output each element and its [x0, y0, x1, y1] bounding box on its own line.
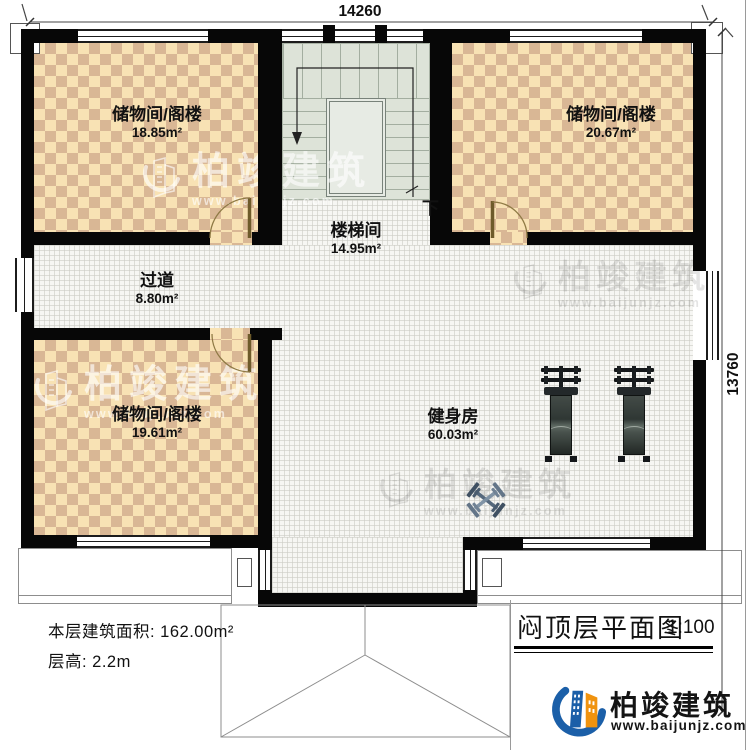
leader-tick	[702, 5, 708, 20]
dimension-right: 13760	[725, 343, 741, 405]
window	[335, 29, 375, 43]
bench-pad	[550, 395, 572, 455]
wall	[693, 360, 706, 550]
stair-treads-left	[283, 98, 326, 199]
staircase	[282, 43, 430, 200]
stair-down-label: 下	[422, 194, 439, 219]
room-area: 8.80m²	[136, 291, 179, 307]
wall	[34, 232, 210, 245]
room-area: 18.85m²	[112, 125, 202, 141]
stair-treads-right	[386, 98, 429, 199]
wall-interior	[258, 43, 282, 245]
title-block-separator	[510, 600, 511, 750]
wall	[210, 535, 258, 548]
dumbbell-icon	[464, 480, 508, 520]
door-threshold-2	[490, 232, 527, 245]
page-frame-line	[745, 0, 746, 750]
window	[387, 29, 423, 43]
wall	[21, 312, 34, 548]
title-underline-thick	[514, 646, 713, 649]
room-name: 储物间/阁楼	[112, 105, 202, 125]
room-name: 储物间/阁楼	[566, 105, 656, 125]
porch-roof-outline	[221, 605, 510, 737]
wall	[463, 537, 477, 550]
floor-height-text: 层高: 2.2m	[48, 648, 131, 672]
porch-roof-hips	[221, 655, 510, 737]
leader-tick	[725, 28, 733, 37]
wall	[477, 537, 523, 550]
wall	[423, 29, 510, 43]
wall-mullion	[375, 25, 387, 43]
eave-outline-left-outer	[18, 548, 232, 604]
room-area: 60.03m²	[428, 427, 479, 443]
room-name: 储物间/阁楼	[112, 405, 202, 425]
bay-floor	[272, 537, 463, 593]
title-underline-thin	[514, 652, 713, 653]
wall	[452, 232, 490, 245]
drawing-title: 闷顶层平面图	[517, 608, 685, 645]
window	[282, 29, 323, 43]
window	[78, 29, 208, 43]
wall	[21, 535, 77, 548]
gym-bench-icon	[616, 366, 652, 462]
room-label-storage-top-right: 储物间/阁楼 20.67m²	[566, 105, 656, 142]
window	[258, 550, 272, 590]
room-label-storage-top-left: 储物间/阁楼 18.85m²	[112, 105, 202, 142]
wall	[258, 340, 272, 550]
bench-foot	[570, 456, 577, 462]
rack-top	[544, 387, 578, 395]
room-name: 过道	[136, 271, 179, 291]
room-label-gym: 健身房 60.03m²	[428, 407, 479, 444]
room-name: 楼梯间	[331, 221, 382, 241]
room-label-storage-bottom-left: 储物间/阁楼 19.61m²	[112, 405, 202, 442]
eave-outline-right-outer	[477, 550, 742, 604]
wall-mullion	[323, 25, 335, 43]
gym-bench-icon	[543, 366, 579, 462]
window	[15, 258, 34, 312]
room-label-stairwell: 楼梯间 14.95m²	[331, 221, 382, 258]
wall	[693, 29, 706, 271]
stair-landing	[326, 98, 386, 197]
room-area: 20.67m²	[566, 125, 656, 141]
bench-pad	[623, 395, 645, 455]
wall	[258, 593, 477, 607]
wall	[21, 328, 210, 340]
window	[77, 535, 210, 548]
window	[706, 271, 719, 360]
window	[463, 550, 477, 590]
room-area: 19.61m²	[112, 425, 202, 441]
floor-plan-canvas: 柏竣建筑 www.baijunjz.com 柏竣建筑 www.baijunjz.…	[0, 0, 750, 750]
brand-logo: 柏竣建筑 www.baijunjz.com	[548, 682, 748, 742]
wall	[252, 232, 258, 245]
door-threshold-3	[210, 328, 250, 340]
leader-tick	[22, 4, 27, 21]
floor-area-text: 本层建筑面积: 162.00m²	[48, 618, 234, 642]
bench-foot	[643, 456, 650, 462]
room-area: 14.95m²	[331, 241, 382, 257]
pier-column	[482, 558, 502, 587]
room-label-corridor: 过道 8.80m²	[136, 271, 179, 308]
wall	[208, 29, 282, 43]
wall	[250, 328, 282, 340]
bench-foot	[618, 456, 625, 462]
rack-top	[617, 387, 651, 395]
wall	[650, 537, 706, 550]
bench-foot	[545, 456, 552, 462]
wall	[527, 232, 693, 245]
wall	[21, 29, 34, 258]
brand-url: www.baijunjz.com	[611, 718, 747, 733]
dimension-top: 14260	[310, 3, 410, 21]
door-threshold-1	[210, 232, 252, 245]
room-name: 健身房	[428, 407, 479, 427]
brand-logo-icon	[548, 682, 608, 740]
stair-treads-top	[283, 44, 431, 98]
drawing-scale: 1:100	[667, 617, 715, 639]
window	[523, 537, 650, 550]
pier-column	[237, 558, 252, 587]
window	[510, 29, 642, 43]
